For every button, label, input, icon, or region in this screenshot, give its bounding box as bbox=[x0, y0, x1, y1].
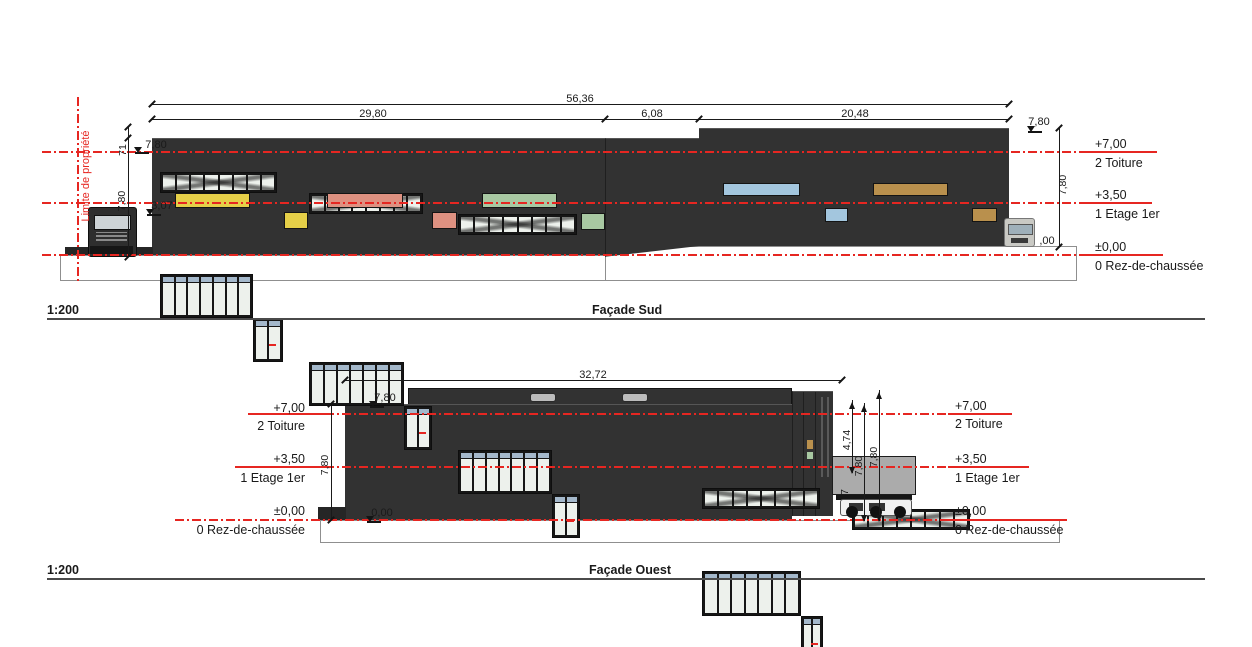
van-grille bbox=[1011, 238, 1028, 243]
dim-label: 4,74 bbox=[841, 430, 853, 450]
level-line-rdc bbox=[42, 254, 1088, 256]
dim-arrow bbox=[876, 515, 882, 525]
transom-strip bbox=[474, 453, 485, 458]
level-value-etage: +3,50 bbox=[955, 452, 987, 466]
transom-strip bbox=[567, 497, 577, 502]
spot-level-label: 7,80 bbox=[374, 392, 395, 404]
glass-panel bbox=[163, 283, 174, 315]
glazing-pane bbox=[555, 497, 565, 535]
window-pane bbox=[191, 175, 203, 190]
glass-panel bbox=[804, 625, 811, 647]
level-name-toiture: 2 Toiture bbox=[185, 419, 305, 433]
transom-strip bbox=[188, 277, 199, 282]
clerestory-window-band bbox=[458, 214, 577, 235]
glass-panel bbox=[407, 415, 417, 447]
transom-strip bbox=[176, 277, 187, 282]
dim-left-label: 29,80 bbox=[359, 108, 387, 120]
window-pane bbox=[791, 491, 803, 506]
transom-strip bbox=[364, 365, 375, 370]
glass-panel bbox=[419, 415, 429, 447]
ground-section-right bbox=[605, 246, 1077, 281]
truck-bumper bbox=[90, 246, 133, 254]
door-sign-yellow bbox=[284, 212, 308, 229]
glass-panel bbox=[351, 371, 362, 403]
glass-panel bbox=[500, 459, 511, 491]
window-pane bbox=[776, 491, 788, 506]
glass-panel bbox=[487, 459, 498, 491]
window-pane bbox=[719, 491, 731, 506]
level-value-rdc: ±0,00 bbox=[955, 504, 986, 518]
transom-strip bbox=[512, 453, 523, 458]
window-pane bbox=[262, 175, 274, 190]
transom-strip bbox=[214, 277, 225, 282]
window-pane bbox=[705, 491, 717, 506]
glass-panel bbox=[732, 580, 744, 613]
level-value-toiture: +7,00 bbox=[185, 401, 305, 415]
scale-label: 1:200 bbox=[47, 563, 79, 577]
transom-strip bbox=[377, 365, 388, 370]
glass-panel bbox=[512, 459, 523, 491]
truck-wheel bbox=[894, 506, 906, 518]
spot-level-marker bbox=[366, 516, 374, 522]
glass-panel bbox=[201, 283, 212, 315]
dim-total-label: 56,36 bbox=[566, 93, 594, 105]
window-pane bbox=[248, 175, 260, 190]
glass-panel bbox=[269, 327, 280, 359]
service-fixture bbox=[807, 440, 813, 449]
clerestory-window-band bbox=[160, 172, 277, 193]
glass-panel bbox=[325, 371, 336, 403]
glazing-pane bbox=[256, 321, 267, 359]
window-pane bbox=[748, 491, 760, 506]
ladder-rail bbox=[821, 397, 823, 477]
window-pane bbox=[490, 217, 502, 232]
glass-panel bbox=[227, 283, 238, 315]
level-value-etage: +3,50 bbox=[1095, 188, 1127, 202]
level-value-rdc: ±0,00 bbox=[185, 504, 305, 518]
level-name-rdc: 0 Rez-de-chaussée bbox=[155, 523, 305, 537]
glass-panel bbox=[538, 459, 549, 491]
transom-strip bbox=[525, 453, 536, 458]
level-line-rdc bbox=[175, 519, 948, 521]
glazing-pane bbox=[188, 277, 199, 315]
level-line-etage bbox=[42, 202, 1088, 204]
glazing-pane bbox=[325, 365, 336, 403]
dim-label-small: 7 bbox=[839, 489, 851, 495]
transom-strip bbox=[461, 453, 472, 458]
glass-panel bbox=[239, 283, 250, 315]
glazing-pane bbox=[538, 453, 549, 491]
glazing-pane bbox=[567, 497, 577, 535]
glass-panel bbox=[256, 327, 267, 359]
dim-label: 7,80 bbox=[853, 456, 865, 476]
level-name-rdc: 0 Rez-de-chaussée bbox=[955, 523, 1063, 537]
dim-arrow bbox=[876, 389, 882, 399]
ground-section-left bbox=[60, 255, 606, 281]
level-name-etage: 1 Etage 1er bbox=[185, 471, 305, 485]
transom-strip bbox=[325, 365, 336, 370]
glass-panel bbox=[719, 580, 731, 613]
glass-panel bbox=[188, 283, 199, 315]
signage-panel-green bbox=[482, 193, 557, 208]
glazing-pane bbox=[525, 453, 536, 491]
glazing-pane bbox=[804, 619, 811, 647]
glazing-pane bbox=[461, 453, 472, 491]
entrance-door bbox=[253, 318, 283, 362]
transom-strip bbox=[813, 619, 820, 624]
dim-tick bbox=[838, 376, 846, 384]
level-line-toiture-label-rule bbox=[1088, 151, 1157, 153]
transom-strip bbox=[163, 277, 174, 282]
spot-level-marker bbox=[146, 209, 154, 215]
level-name-toiture: 2 Toiture bbox=[955, 417, 1003, 431]
glass-panel bbox=[525, 459, 536, 491]
window-pane bbox=[475, 217, 487, 232]
transom-strip bbox=[555, 497, 565, 502]
dim-arrow bbox=[861, 515, 867, 525]
transom-strip bbox=[227, 277, 238, 282]
glazing-pane bbox=[239, 277, 250, 315]
glass-panel bbox=[214, 283, 225, 315]
transom-strip bbox=[804, 619, 811, 624]
transom-strip bbox=[269, 321, 280, 326]
spot-level-marker bbox=[369, 401, 377, 407]
door-sign-salmon bbox=[432, 212, 457, 229]
level-line-etage-label-rule bbox=[1088, 202, 1152, 204]
elevation-title: Façade Sud bbox=[592, 303, 662, 317]
height-dim-label: 7,80 bbox=[116, 191, 128, 211]
property-limit-label: Limite de propriété bbox=[80, 130, 92, 221]
door-sign-tan bbox=[972, 208, 997, 222]
door-handle-mark bbox=[419, 432, 426, 434]
dim-arrow bbox=[861, 402, 867, 412]
glazing-pane bbox=[227, 277, 238, 315]
spot-level-label: 7,80 bbox=[145, 139, 166, 151]
transom-strip bbox=[538, 453, 549, 458]
level-line-toiture bbox=[42, 151, 1088, 153]
glazing-pane bbox=[474, 453, 485, 491]
transom-strip bbox=[487, 453, 498, 458]
transom-strip bbox=[500, 453, 511, 458]
window-pane bbox=[519, 217, 531, 232]
level-line-rdc-label-rule bbox=[948, 519, 1067, 521]
service-fixture bbox=[807, 452, 813, 459]
transom-strip bbox=[390, 365, 401, 370]
elevation-title: Façade Ouest bbox=[589, 563, 671, 577]
level-value-toiture: +7,00 bbox=[955, 399, 987, 413]
spot-level-label: 3,07 bbox=[151, 200, 172, 212]
level-value-toiture: +7,00 bbox=[1095, 137, 1127, 151]
title-rule bbox=[47, 578, 1205, 580]
glazing-pane bbox=[500, 453, 511, 491]
level-name-rdc: 0 Rez-de-chaussée bbox=[1095, 259, 1203, 273]
glass-panel bbox=[176, 283, 187, 315]
window-pane bbox=[562, 217, 574, 232]
glazing-pane bbox=[163, 277, 174, 315]
glass-panel bbox=[759, 580, 771, 613]
glazing-pane bbox=[214, 277, 225, 315]
roof-vent bbox=[622, 393, 648, 402]
level-line-toiture-label-rule bbox=[948, 413, 1012, 415]
glass-panel bbox=[312, 371, 323, 403]
storefront-glazing bbox=[458, 450, 552, 494]
window-pane bbox=[734, 491, 746, 506]
roof-vent bbox=[530, 393, 556, 402]
van-windshield bbox=[1008, 224, 1033, 235]
glass-panel bbox=[773, 580, 785, 613]
glazing-pane bbox=[176, 277, 187, 315]
signage-panel-yellow bbox=[175, 193, 250, 208]
spot-zero-label: ,00 bbox=[1039, 235, 1054, 247]
window-pane bbox=[177, 175, 189, 190]
entrance-door bbox=[801, 616, 823, 647]
window-pane bbox=[220, 175, 232, 190]
window-pane bbox=[504, 217, 516, 232]
transom-strip bbox=[256, 321, 267, 326]
signage-panel-tan bbox=[873, 183, 948, 196]
glazing-pane bbox=[512, 453, 523, 491]
glazing-pane bbox=[269, 321, 280, 359]
drawing-sheet: Limite de propriété 56,36 29,80 6,08 20,… bbox=[0, 0, 1252, 647]
level-line-etage-label-rule bbox=[235, 466, 325, 468]
offset-dim-label: 71 bbox=[117, 144, 129, 156]
level-line-rdc-label-rule bbox=[1088, 254, 1163, 256]
dim-arrow bbox=[849, 399, 855, 409]
door-handle-mark bbox=[811, 643, 818, 645]
level-line-toiture bbox=[325, 413, 948, 415]
transom-strip bbox=[201, 277, 212, 282]
signage-panel-blue bbox=[723, 183, 800, 196]
door-handle-mark bbox=[269, 344, 276, 346]
property-limit-line bbox=[77, 97, 79, 283]
glass-panel bbox=[474, 459, 485, 491]
window-pane bbox=[762, 491, 774, 506]
glazing-pane bbox=[351, 365, 362, 403]
level-name-etage: 1 Etage 1er bbox=[1095, 207, 1160, 221]
glass-panel bbox=[705, 580, 717, 613]
dim-mid-label: 6,08 bbox=[641, 108, 662, 120]
dim-label: 7,80 bbox=[868, 447, 880, 467]
truck-grille bbox=[96, 232, 127, 241]
window-pane bbox=[205, 175, 217, 190]
storefront-glazing bbox=[160, 274, 253, 318]
glazing-pane bbox=[487, 453, 498, 491]
clerestory-window-band bbox=[702, 488, 820, 509]
entrance-door bbox=[552, 494, 580, 538]
level-name-etage: 1 Etage 1er bbox=[955, 471, 1020, 485]
title-rule bbox=[47, 318, 1205, 320]
window-pane bbox=[547, 217, 559, 232]
transom-strip bbox=[312, 365, 323, 370]
van-front-view bbox=[1004, 218, 1035, 247]
glass-panel bbox=[746, 580, 758, 613]
ladder-rail bbox=[827, 397, 829, 477]
transom-strip bbox=[239, 277, 250, 282]
window-pane bbox=[533, 217, 545, 232]
transom-strip bbox=[338, 365, 349, 370]
dim-total-label: 32,72 bbox=[579, 369, 607, 381]
door-sign-green bbox=[581, 213, 605, 230]
glass-panel bbox=[461, 459, 472, 491]
transom-strip bbox=[351, 365, 362, 370]
building-connector bbox=[605, 138, 699, 258]
glazing-pane bbox=[201, 277, 212, 315]
dim-right-label: 20,48 bbox=[841, 108, 869, 120]
scale-label: 1:200 bbox=[47, 303, 79, 317]
spot-zero-label: 0,00 bbox=[371, 507, 392, 519]
glass-panel bbox=[786, 580, 798, 613]
height-dim-label: 7,80 bbox=[319, 455, 331, 475]
door-sign-blue bbox=[825, 208, 848, 222]
spot-level-marker bbox=[134, 147, 142, 153]
level-value-etage: +3,50 bbox=[185, 452, 305, 466]
height-dim-label: 7,80 bbox=[1057, 175, 1069, 195]
truck-windshield bbox=[94, 215, 131, 230]
window-pane bbox=[234, 175, 246, 190]
level-line-etage-label-rule bbox=[948, 466, 1029, 468]
signage-panel-salmon bbox=[327, 193, 403, 208]
glazing-pane bbox=[312, 365, 323, 403]
level-value-rdc: ±0,00 bbox=[1095, 240, 1126, 254]
facade-ouest-elevation: 32,72 7,80 7,80 0,00 4,74 7,80 7,80 7 +7… bbox=[0, 0, 1252, 647]
window-pane bbox=[461, 217, 473, 232]
glazing-pane bbox=[338, 365, 349, 403]
window-pane bbox=[805, 491, 817, 506]
truck-wheel bbox=[846, 506, 858, 518]
level-name-toiture: 2 Toiture bbox=[1095, 156, 1143, 170]
spot-level-marker bbox=[1027, 126, 1035, 132]
